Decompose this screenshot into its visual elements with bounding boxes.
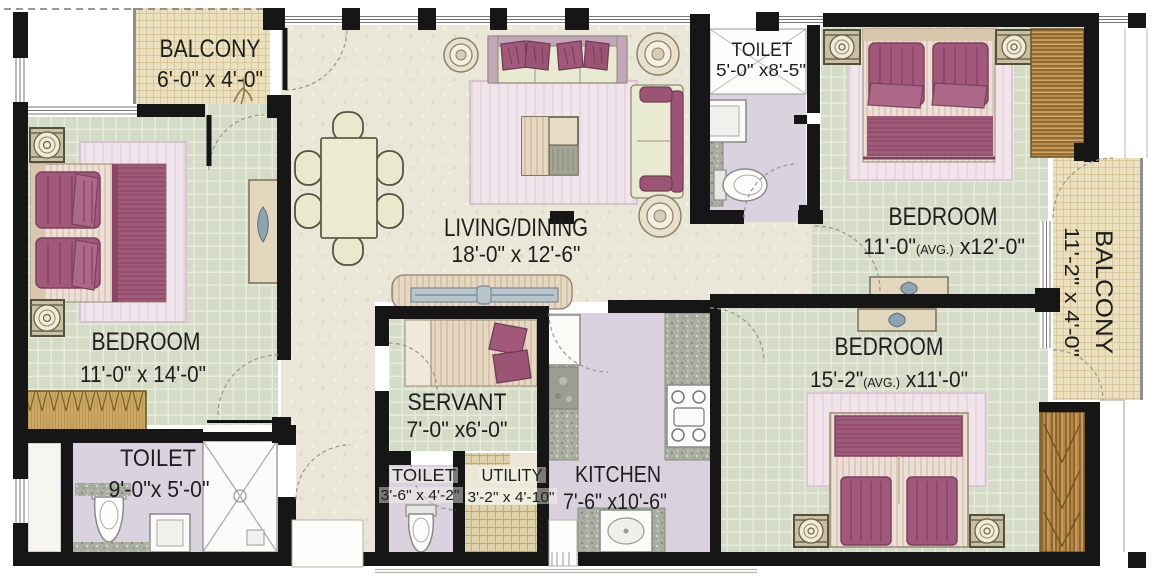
svg-text:BEDROOM: BEDROOM xyxy=(835,333,944,361)
svg-text:LIVING/DINING: LIVING/DINING xyxy=(444,214,588,242)
svg-text:6'-0" x 4'-0": 6'-0" x 4'-0" xyxy=(157,66,263,92)
svg-text:3'-6" x 4'-2": 3'-6" x 4'-2" xyxy=(381,487,460,504)
svg-text:UTILITY: UTILITY xyxy=(482,465,543,485)
svg-text:BEDROOM: BEDROOM xyxy=(92,328,201,356)
svg-text:9'-0"x 5'-0": 9'-0"x 5'-0" xyxy=(109,476,210,502)
svg-text:BEDROOM: BEDROOM xyxy=(889,203,998,231)
svg-text:BALCONY: BALCONY xyxy=(160,35,261,63)
svg-text:TOILET: TOILET xyxy=(120,445,196,472)
svg-text:11'-0" x 14'-0": 11'-0" x 14'-0" xyxy=(80,361,206,387)
svg-text:5'-0" x8'-5": 5'-0" x8'-5" xyxy=(716,60,806,80)
svg-text:KITCHEN: KITCHEN xyxy=(575,461,661,487)
svg-text:TOILET: TOILET xyxy=(392,465,456,485)
svg-text:7'-0" x6'-0": 7'-0" x6'-0" xyxy=(407,417,508,442)
svg-text:TOILET: TOILET xyxy=(732,40,793,61)
svg-text:3'-2" x 4'-10": 3'-2" x 4'-10" xyxy=(468,489,555,506)
svg-text:11'-2" x 4'-0": 11'-2" x 4'-0" xyxy=(1060,227,1082,357)
svg-text:18'-0" x 12'-6": 18'-0" x 12'-6" xyxy=(452,241,581,267)
svg-text:7'-6" x10'-6": 7'-6" x10'-6" xyxy=(563,489,667,514)
svg-text:BALCONY: BALCONY xyxy=(1090,230,1117,354)
svg-text:SERVANT: SERVANT xyxy=(408,389,507,416)
